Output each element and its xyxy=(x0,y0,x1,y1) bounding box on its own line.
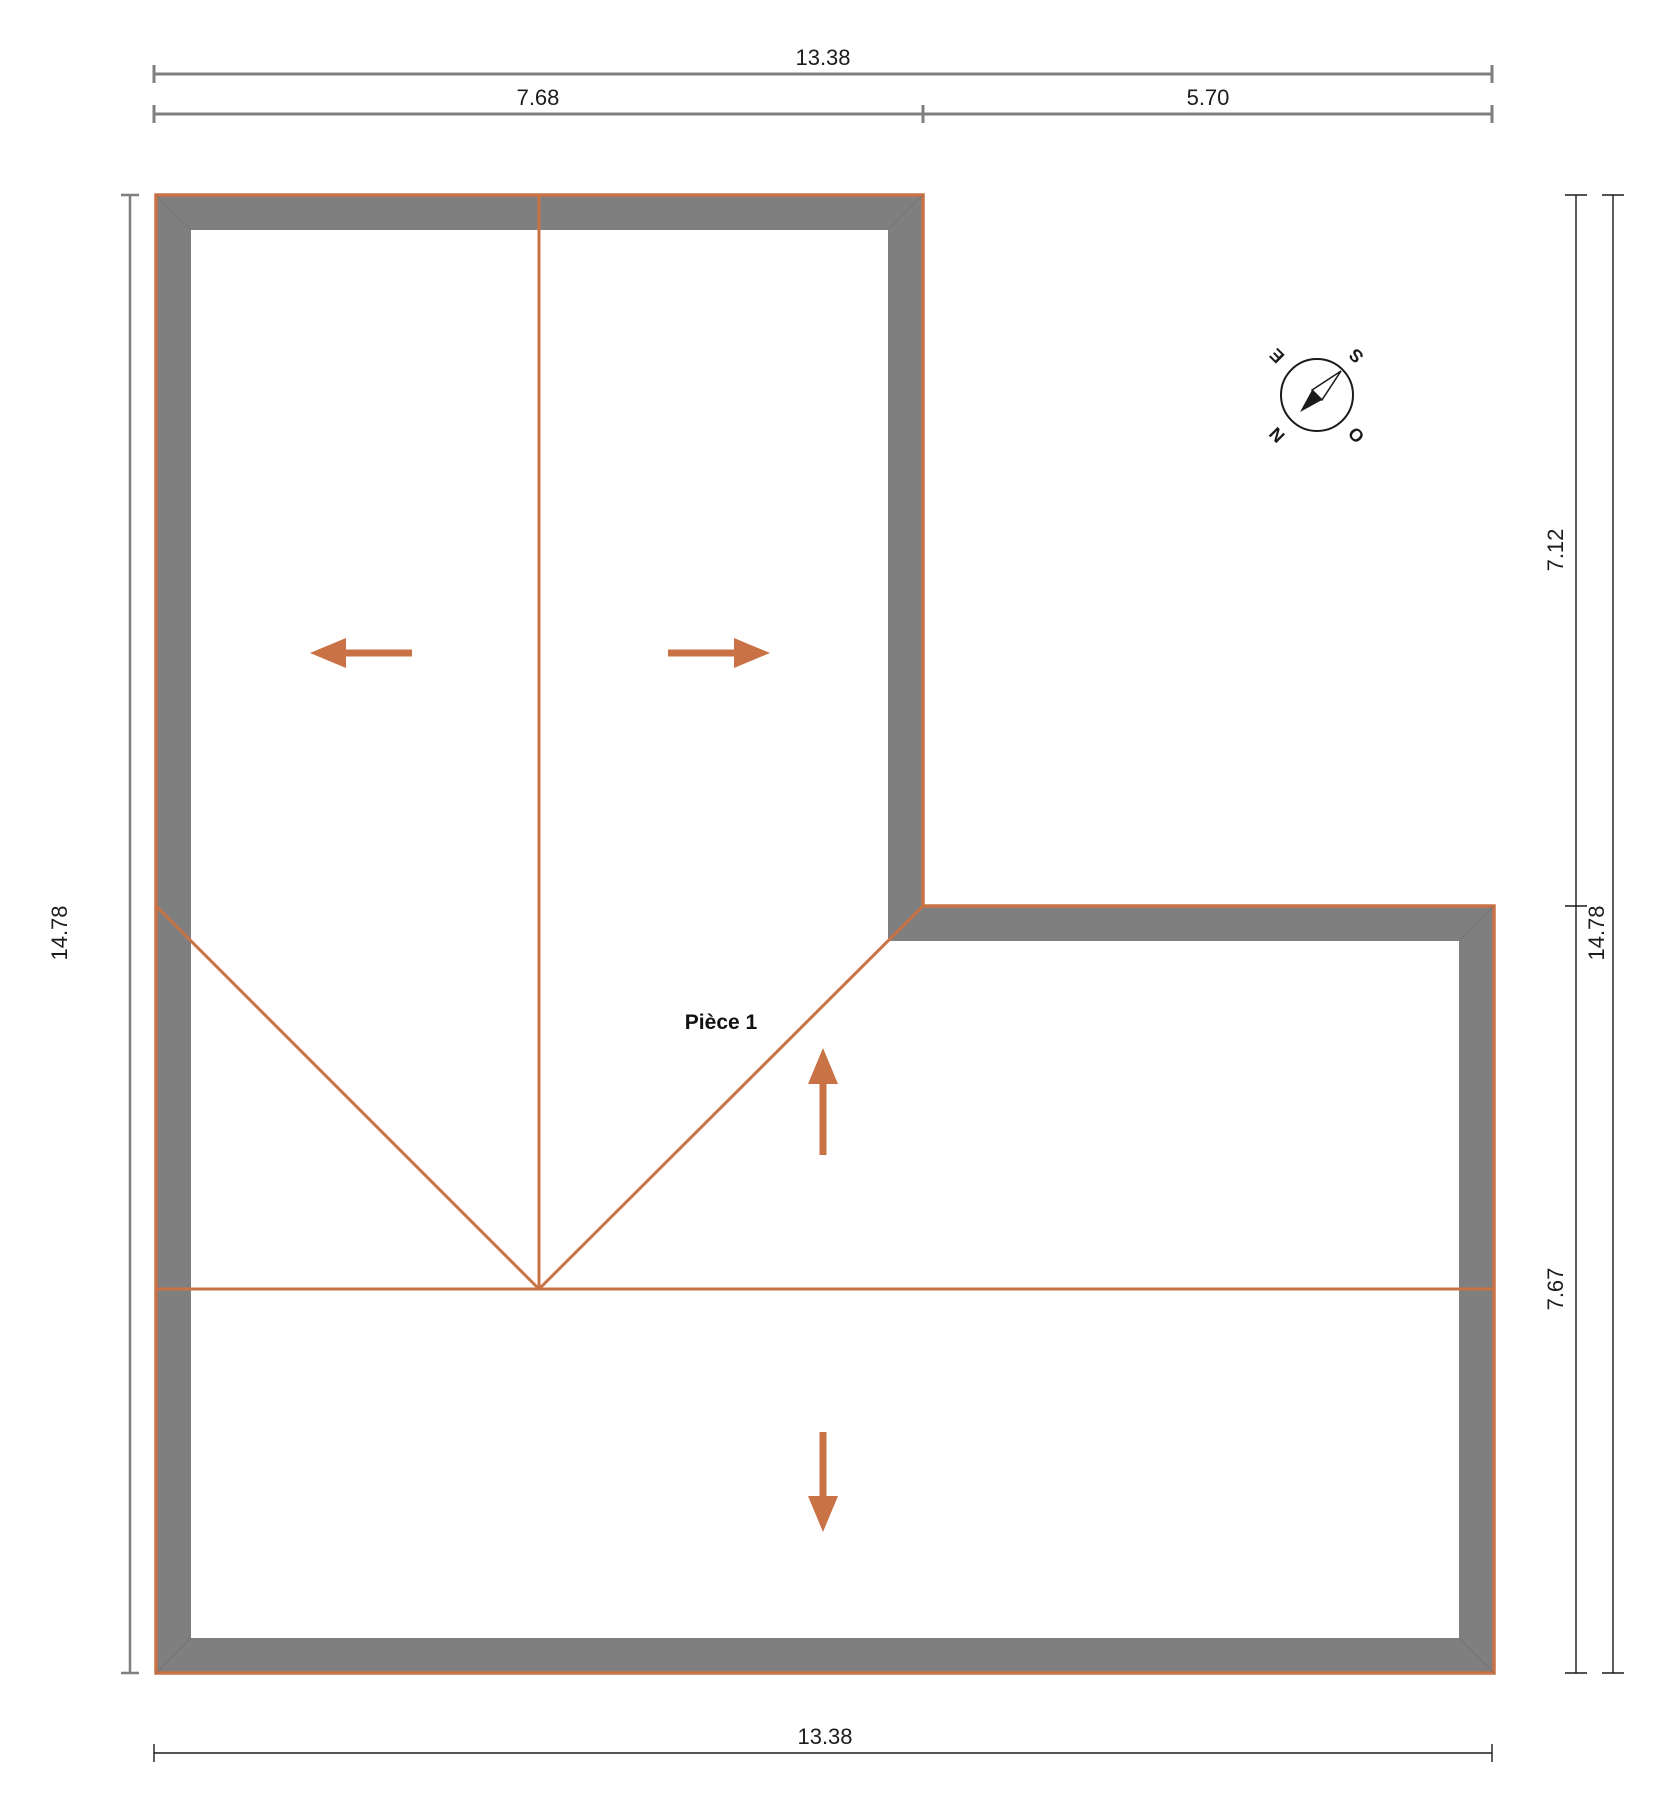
dim-top-left-segment: 7.68 xyxy=(517,85,560,111)
dim-top-total: 13.38 xyxy=(795,45,850,71)
room-label: Pièce 1 xyxy=(685,1011,757,1035)
dim-right-total: 14.78 xyxy=(1584,905,1610,960)
dim-top-right-segment: 5.70 xyxy=(1187,85,1230,111)
dim-right-upper: 7.12 xyxy=(1543,529,1569,572)
dim-bottom-total: 13.38 xyxy=(797,1724,852,1750)
roof-plan-drawing: 13.38 7.68 5.70 14.78 7.12 14.78 7.67 13… xyxy=(0,0,1667,1808)
plan-geometry xyxy=(0,0,1667,1808)
dim-right-lower: 7.67 xyxy=(1543,1268,1569,1311)
dim-lines-top xyxy=(154,65,1492,123)
dim-line-left xyxy=(121,195,139,1673)
dim-left-height: 14.78 xyxy=(47,905,73,960)
